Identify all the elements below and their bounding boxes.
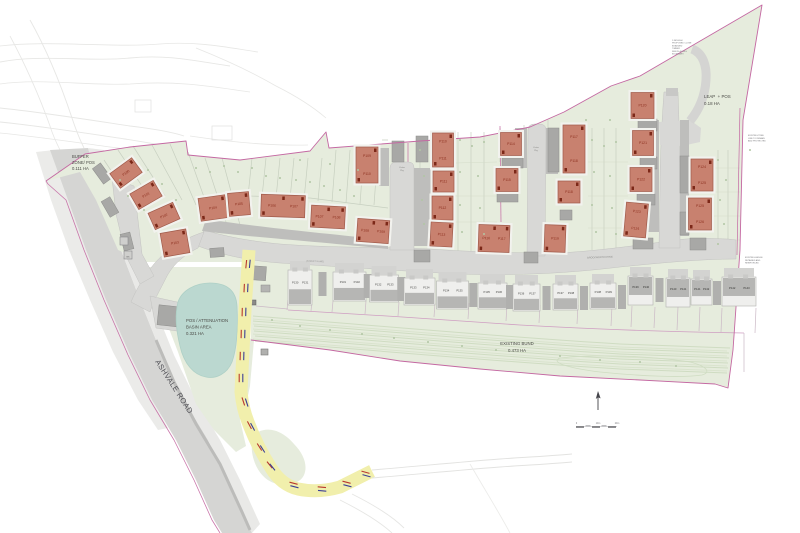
svg-text:P134: P134 <box>423 285 430 289</box>
svg-text:P126: P126 <box>696 220 704 224</box>
svg-text:P135: P135 <box>484 290 491 294</box>
svg-text:P116: P116 <box>482 236 490 240</box>
svg-text:LINE TO REMAIN: LINE TO REMAIN <box>748 137 765 140</box>
svg-text:P125: P125 <box>696 204 704 208</box>
svg-text:P108: P108 <box>361 228 369 233</box>
svg-text:0.111 HA: 0.111 HA <box>72 166 89 171</box>
svg-text:P143: P143 <box>743 286 750 290</box>
svg-text:LEAP + POS: LEAP + POS <box>704 94 731 99</box>
svg-text:P138: P138 <box>595 290 602 294</box>
svg-text:P140: P140 <box>670 287 677 291</box>
svg-text:P109: P109 <box>377 229 385 234</box>
svg-text:P130: P130 <box>292 280 299 284</box>
svg-text:Visitor: Visitor <box>399 166 405 169</box>
svg-text:P113: P113 <box>438 232 446 236</box>
svg-text:P107: P107 <box>290 204 298 208</box>
svg-text:AND PROTECTED: AND PROTECTED <box>748 140 766 143</box>
svg-text:P133: P133 <box>410 285 417 289</box>
svg-text:P140: P140 <box>643 285 650 289</box>
svg-text:P111: P111 <box>440 180 448 184</box>
svg-text:P139: P139 <box>606 290 613 294</box>
svg-text:EXISTING TREE: EXISTING TREE <box>748 135 764 137</box>
svg-text:P118: P118 <box>565 190 573 194</box>
svg-text:P142: P142 <box>703 287 710 291</box>
svg-text:P136: P136 <box>518 291 525 295</box>
svg-text:P141: P141 <box>680 287 687 291</box>
svg-text:EXISTING HEDGE: EXISTING HEDGE <box>745 257 763 259</box>
svg-text:0.18 HA: 0.18 HA <box>704 101 720 106</box>
svg-text:P110: P110 <box>439 140 447 144</box>
svg-text:P111: P111 <box>439 157 447 161</box>
svg-text:P118: P118 <box>570 159 578 163</box>
svg-text:0.321 HA: 0.321 HA <box>186 331 204 336</box>
svg-text:P132: P132 <box>354 280 361 284</box>
svg-text:P136: P136 <box>496 290 503 294</box>
svg-text:POS / ATTENUATION: POS / ATTENUATION <box>186 318 228 323</box>
svg-text:P122: P122 <box>637 178 645 182</box>
svg-text:20m: 20m <box>615 423 620 425</box>
svg-text:P109: P109 <box>363 154 371 158</box>
svg-text:P134: P134 <box>443 289 450 293</box>
svg-text:REINFORCED: REINFORCED <box>745 263 759 265</box>
svg-text:P131: P131 <box>302 280 309 284</box>
svg-text:P132: P132 <box>375 282 382 286</box>
svg-text:P115: P115 <box>503 178 511 182</box>
svg-text:P105: P105 <box>235 202 243 207</box>
svg-text:P112: P112 <box>439 206 447 210</box>
svg-text:P107: P107 <box>315 214 323 218</box>
svg-text:BOUNDARY: BOUNDARY <box>672 53 684 56</box>
svg-text:P141: P141 <box>694 287 701 291</box>
svg-text:P120: P120 <box>639 104 647 108</box>
svg-text:FENCE ALONG: FENCE ALONG <box>672 50 687 53</box>
svg-text:PROPOSED CLOSE: PROPOSED CLOSE <box>672 43 692 45</box>
svg-text:P106: P106 <box>268 203 276 207</box>
svg-text:BUFFER: BUFFER <box>72 154 89 159</box>
svg-text:P138: P138 <box>568 291 575 295</box>
svg-text:1.8M HIGH: 1.8M HIGH <box>672 40 683 42</box>
svg-text:P124: P124 <box>698 165 706 169</box>
svg-text:P110: P110 <box>363 172 371 176</box>
svg-text:P117: P117 <box>570 135 578 139</box>
svg-text:RETAINED AND: RETAINED AND <box>745 259 761 262</box>
svg-text:P114: P114 <box>507 142 515 146</box>
svg-text:TIMBER: TIMBER <box>672 48 680 50</box>
svg-text:P124: P124 <box>631 226 639 231</box>
svg-text:EXISTING BUND: EXISTING BUND <box>500 341 533 346</box>
svg-text:BASIN AREA: BASIN AREA <box>186 325 212 330</box>
svg-text:P131: P131 <box>340 280 347 284</box>
svg-text:P108: P108 <box>332 215 340 219</box>
svg-text:P119: P119 <box>551 236 559 240</box>
svg-text:P123: P123 <box>633 209 641 214</box>
svg-text:P139: P139 <box>632 285 639 289</box>
svg-text:P125: P125 <box>698 181 706 185</box>
svg-text:BOARDED: BOARDED <box>672 44 683 47</box>
svg-text:P137: P137 <box>529 291 536 295</box>
svg-text:P135: P135 <box>456 289 463 293</box>
svg-text:Visitor: Visitor <box>533 146 539 149</box>
svg-text:P133: P133 <box>387 282 394 286</box>
svg-text:P121: P121 <box>639 141 647 145</box>
svg-text:10m: 10m <box>596 423 601 425</box>
svg-text:0.473 HA: 0.473 HA <box>508 348 526 353</box>
svg-text:ZONE/ POS: ZONE/ POS <box>72 160 95 165</box>
svg-text:P142: P142 <box>729 286 736 290</box>
svg-text:P117: P117 <box>498 237 506 241</box>
svg-text:P137: P137 <box>557 291 564 295</box>
